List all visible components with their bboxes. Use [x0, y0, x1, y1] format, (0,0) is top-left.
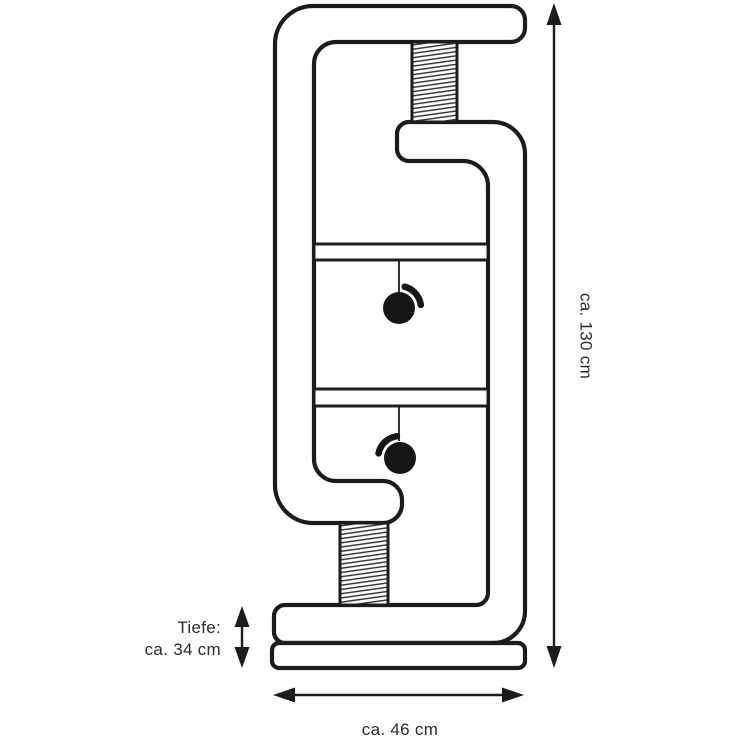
width-arrow-left-icon: [273, 688, 295, 703]
bottom-scratching-post: [340, 523, 388, 605]
height-arrow-up-icon: [547, 3, 562, 25]
upper-platform: [314, 244, 488, 260]
height-arrow-down-icon: [547, 646, 562, 668]
upper-play-ball: [383, 292, 415, 324]
width-dimension-label: ca. 46 cm: [362, 720, 438, 736]
base-bottom-plate: [272, 643, 525, 668]
depth-dimension-label-line1: Tiefe:: [177, 618, 221, 637]
depth-dimension-label-line2: ca. 34 cm: [145, 640, 221, 659]
top-scratching-post: [412, 42, 457, 122]
lower-platform: [314, 389, 488, 406]
depth-dimension: Tiefe: ca. 34 cm: [145, 606, 250, 668]
depth-arrow-up-icon: [235, 606, 250, 627]
product-dimension-diagram: ca. 130 cm Tiefe: ca. 34 cm ca. 46 cm: [0, 0, 736, 736]
width-dimension: ca. 46 cm: [273, 688, 524, 736]
height-dimension-label: ca. 130 cm: [577, 293, 596, 379]
lower-play-ball: [384, 442, 416, 474]
width-arrow-right-icon: [502, 688, 524, 703]
height-dimension: ca. 130 cm: [547, 3, 596, 668]
depth-arrow-down-icon: [235, 647, 250, 668]
diagram-svg: ca. 130 cm Tiefe: ca. 34 cm ca. 46 cm: [0, 0, 736, 736]
